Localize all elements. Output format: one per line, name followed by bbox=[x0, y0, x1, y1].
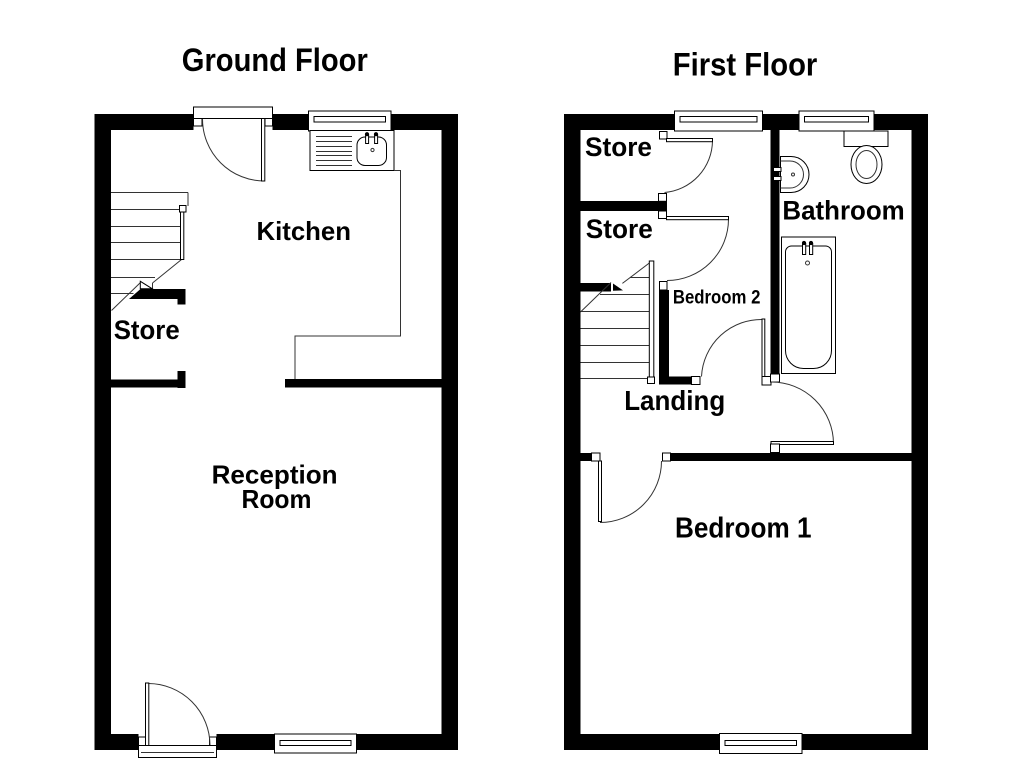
svg-text:Store: Store bbox=[586, 214, 653, 244]
svg-text:Room: Room bbox=[242, 484, 312, 514]
svg-text:Bedroom 2: Bedroom 2 bbox=[673, 288, 761, 309]
svg-text:Landing: Landing bbox=[624, 385, 725, 416]
svg-text:First Floor: First Floor bbox=[673, 47, 818, 83]
svg-text:Store: Store bbox=[585, 132, 652, 162]
svg-text:Store: Store bbox=[114, 315, 180, 345]
svg-text:Bathroom: Bathroom bbox=[782, 195, 904, 225]
svg-text:Kitchen: Kitchen bbox=[257, 216, 352, 246]
svg-text:Bedroom 1: Bedroom 1 bbox=[675, 513, 812, 545]
svg-text:Ground Floor: Ground Floor bbox=[182, 42, 368, 78]
